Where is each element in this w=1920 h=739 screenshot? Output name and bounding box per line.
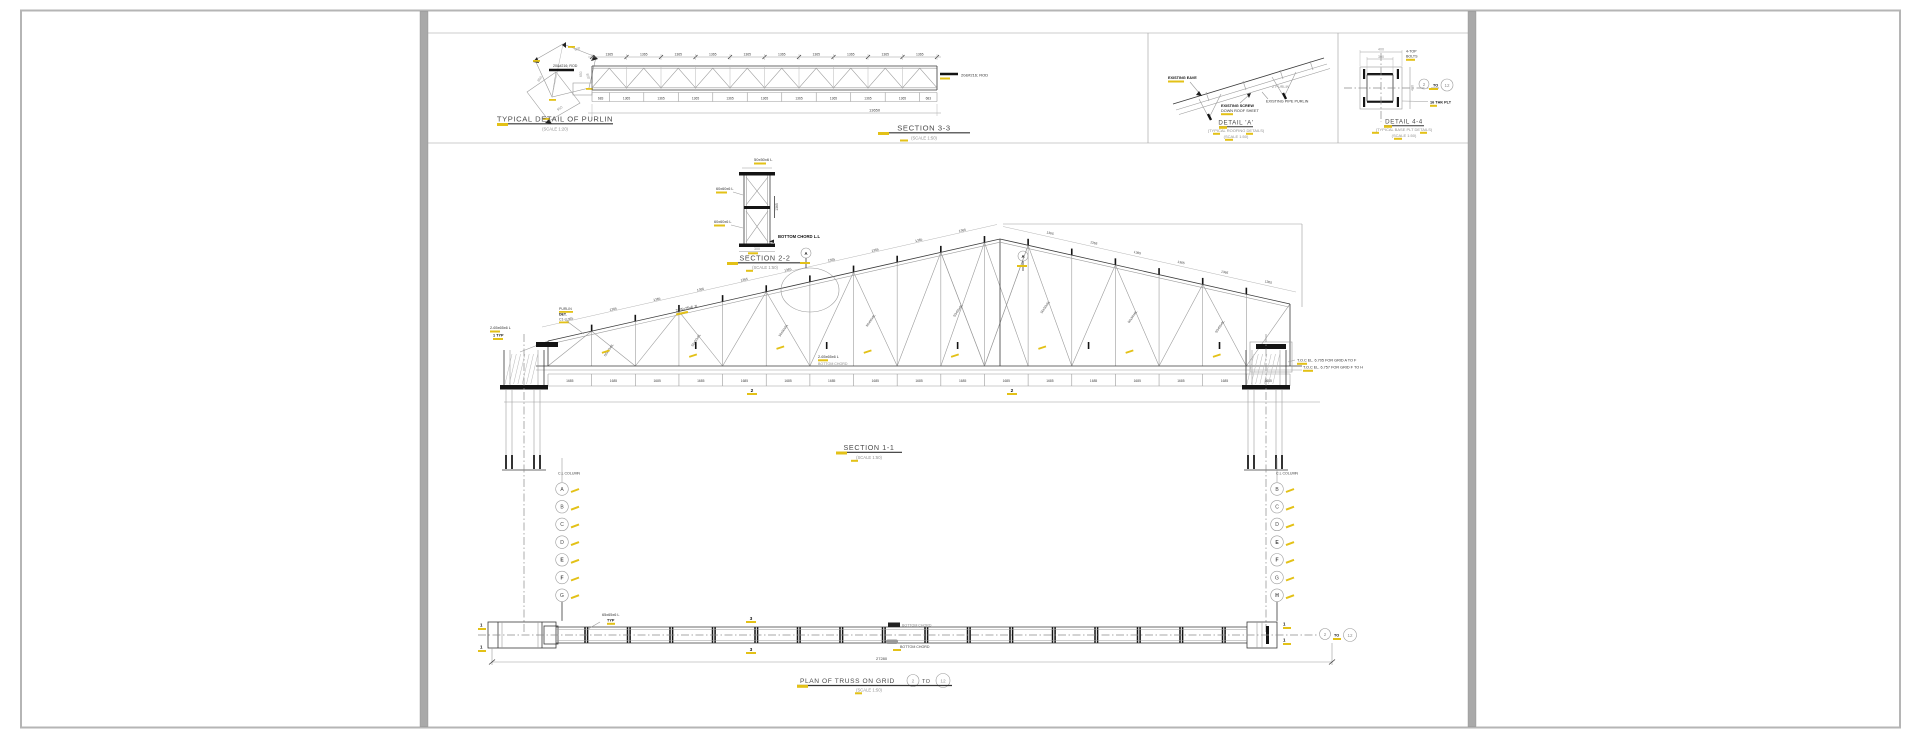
girder-bottom-dim: 1365 <box>761 96 769 100</box>
anchor-mark <box>539 455 541 469</box>
detail-a-flag: A <box>804 251 807 256</box>
elev-bay-dim: 1685 <box>653 379 661 383</box>
purlin-cleat-tick <box>1158 268 1160 275</box>
girder-top-dim: 1365 <box>916 53 924 57</box>
girder-top-dim: 1365 <box>709 53 717 57</box>
plan-chord-note-bottom: BOTTOM CHORD <box>900 645 930 649</box>
girder-top-dim: 1365 <box>640 53 648 57</box>
girder-rod-label: 20&#216; ROD <box>961 73 988 78</box>
plan-title-grid-to: 12 <box>940 679 946 685</box>
detail-4-4-bolt-note-2: BOLTS <box>1406 55 1418 59</box>
purlin-cleat-tick <box>634 315 636 322</box>
outer-border <box>21 11 1900 728</box>
purlin-cleat-tick <box>765 285 767 292</box>
purlin-note-2: DET. <box>559 313 567 317</box>
plan-cut-flag-top: 3 <box>750 616 753 621</box>
purlin-cleat-tick <box>1027 239 1029 246</box>
elev-bay-dim: 1685 <box>1046 379 1054 383</box>
elev-bay-dim: 1685 <box>959 379 967 383</box>
detail-4-4-dim-400: 400 <box>1378 48 1384 52</box>
detail-4-4-title: DETAIL 4-4 <box>1385 119 1423 126</box>
detail-4-4-dim-300: 300 <box>1378 55 1384 59</box>
elev-bay-dim: 1685 <box>1177 379 1185 383</box>
member-section-tick <box>695 342 697 349</box>
girder-bottom-dim: 683 <box>926 96 932 100</box>
left-grid-letter: F <box>560 575 563 581</box>
girder-top-dim: 1365 <box>881 53 889 57</box>
plan-title-grid-word: TO <box>922 679 931 685</box>
detail-a-scale: (SCALE 1:50) <box>1224 134 1249 139</box>
detail-4-4-grid-to-bubble: 12 <box>1444 83 1450 88</box>
member-section-tick <box>1219 342 1221 349</box>
detail-a-eave-label: EXISTING EAVE <box>1168 76 1197 80</box>
purlin-cleat-tick <box>896 256 898 262</box>
section-2-2-chord-label: BOTTOM CHORD L.L <box>778 234 820 239</box>
section-2-2-left-label-2: 60x60x6 L <box>714 220 732 224</box>
anchor-mark <box>511 455 513 469</box>
girder-top-dim: 1365 <box>674 53 682 57</box>
girder-bottom-dim: 1365 <box>795 96 803 100</box>
purlin-cleat-tick <box>984 236 986 243</box>
right-grid-letter: C <box>1275 505 1279 511</box>
detail-a-zpurlin-label: Z PURLIN <box>1272 85 1290 89</box>
girder-total-dim: 13650 <box>869 108 881 113</box>
cad-viewer-canvas: 20&#216; ROD 650 800 850 950 TYPICAL DET… <box>0 0 1920 739</box>
section-3-3-scale: (SCALE 1:50) <box>911 136 937 141</box>
detail-4-4-bolt-note-1: 4-TOP <box>1406 50 1417 54</box>
bottom-chord-label-2: BOTTOM CHORD <box>818 362 848 366</box>
plan-title: PLAN OF TRUSS ON GRID <box>800 678 895 685</box>
elev-bay-dim: 1685 <box>1221 379 1229 383</box>
purlin-cleat-tick <box>1246 288 1248 295</box>
toc-note-2: T.O.C EL. 6.757 FOR GRID F TO H <box>1303 366 1363 370</box>
girder-top-dim: 1365 <box>812 53 820 57</box>
purlin-cleat-tick <box>853 266 855 273</box>
detail-a-screw-label-1: EXISTING SCREW <box>1221 104 1254 108</box>
left-grid-letter: D <box>560 540 564 546</box>
section-1-1-title: SECTION 1-1 <box>844 443 895 452</box>
elev-bay-dim: 1685 <box>1134 379 1142 383</box>
bottom-chord-label: 2-65x65x6 L <box>818 355 839 359</box>
plan-total-dim: 27280 <box>876 656 888 661</box>
girder-left-dim: 650 <box>579 71 583 77</box>
detail-4-4-dim-right: 400 <box>1411 85 1415 91</box>
section-2-2-dim-width: 300 <box>754 247 760 251</box>
section-3-3-title: SECTION 3-3 <box>897 124 950 133</box>
viewer-frame <box>21 11 1900 728</box>
section-2-2-scale: (SCALE 1:50) <box>752 265 778 270</box>
purlin-cleat-tick <box>1202 278 1204 285</box>
anchor-mark <box>1281 455 1283 469</box>
elev-bay-dim: 1685 <box>915 379 923 383</box>
elev-bay-dim: 1685 <box>566 379 574 383</box>
section-2-2-dim-height: 1365 <box>775 203 779 211</box>
right-grid-letter: D <box>1275 522 1279 528</box>
girder-bottom-dim: 1365 <box>657 96 665 100</box>
member-section-tick <box>957 342 959 349</box>
section-2-2-title: SECTION 2-2 <box>740 254 791 263</box>
elev-bay-dim: 1685 <box>1265 379 1273 383</box>
girder-bottom-dim: 1365 <box>864 96 872 100</box>
anchor-mark <box>505 455 507 469</box>
girder-top-dim: 1365 <box>847 53 855 57</box>
girder-bottom-dim: 1365 <box>692 96 700 100</box>
right-grid-letter: H <box>1275 593 1279 599</box>
plan-member-label: 65x65x6 L <box>602 613 620 617</box>
member-section-tick <box>826 342 828 349</box>
right-grid-letter: G <box>1275 575 1279 581</box>
elev-bay-dim: 1685 <box>828 379 836 383</box>
purlin-cleat-tick <box>591 325 593 332</box>
purlin-cleat-tick <box>1071 249 1073 256</box>
purlin-detail-title: TYPICAL DETAIL OF PURLIN <box>497 115 613 124</box>
elev-bay-dim: 1685 <box>872 379 880 383</box>
purlin-cleat-tick <box>1115 258 1117 265</box>
plan-grid-word: TO <box>1334 634 1339 638</box>
elev-bay-dim: 1685 <box>610 379 618 383</box>
purlin-note-1: PURLIN <box>559 307 572 311</box>
page-divider-right <box>1468 12 1476 727</box>
detail-4-4-plate-note: 16 THK PLT <box>1430 101 1452 105</box>
page-divider-left <box>420 12 428 727</box>
plan-scale: (SCALE 1:50) <box>856 688 882 693</box>
toc-note-1: T.O.C EL. 6.705 FOR GRID A TO F <box>1297 359 1357 363</box>
left-member-label: 2-65x65x6 L <box>490 326 511 330</box>
purlin-cleat-tick <box>940 246 942 253</box>
section-1-1-scale: (SCALE 1:50) <box>856 455 882 460</box>
girder-bottom-dim: 683 <box>598 96 604 100</box>
left-grid-letter: G <box>560 593 564 599</box>
detail-a-pipe-label: EXISTING PIPE PURLIN <box>1266 100 1309 104</box>
plan-grid-to-bubble: 12 <box>1347 633 1353 638</box>
detail-4-4-scale: (SCALE 1:50) <box>1392 133 1417 138</box>
section-2-2-left-label-1: 60x60x6 L <box>716 187 734 191</box>
detail-a-title: DETAIL 'A' <box>1218 120 1253 127</box>
detail-4-4-subtitle: (TYPICAL BASE PLT DETAILS) <box>1376 127 1433 132</box>
girder-bottom-dim: 1365 <box>899 96 907 100</box>
purlin-rod-label: 20&#216; ROD <box>553 64 578 68</box>
left-typ-label: 1 TYP <box>493 334 504 338</box>
member-section-tick <box>1088 342 1090 349</box>
girder-top-dim: 1365 <box>605 53 613 57</box>
purlin-detail-scale: (SCALE 1:20) <box>542 127 568 132</box>
girder-top-dim: 1365 <box>778 53 786 57</box>
girder-bottom-dim: 1365 <box>830 96 838 100</box>
girder-top-dim: 1365 <box>743 53 751 57</box>
anchor-mark <box>1247 455 1249 469</box>
cl-column-note-left: C.L COLUMN <box>558 472 580 476</box>
elev-bay-dim: 1685 <box>1003 379 1011 383</box>
elev-bay-dim: 1685 <box>741 379 749 383</box>
purlin-cleat-tick <box>809 275 811 282</box>
elev-bay-dim: 1685 <box>784 379 792 383</box>
girder-bottom-dim: 1365 <box>726 96 734 100</box>
anchor-mark <box>533 455 535 469</box>
girder-bottom-dim: 1365 <box>623 96 631 100</box>
drawing-sheet: 20&#216; ROD 650 800 850 950 TYPICAL DET… <box>0 0 1920 739</box>
elev-bay-dim: 1685 <box>1090 379 1098 383</box>
plan-title-grid-from: 2 <box>912 679 915 685</box>
anchor-mark <box>1253 455 1255 469</box>
purlin-cleat-tick <box>722 295 724 302</box>
plan-cut-flag-bottom: 3 <box>750 647 753 652</box>
cl-column-note-right: C.L COLUMN <box>1276 472 1298 476</box>
detail-a-screw-label-2: DOWN ROOF SHEET <box>1221 109 1259 113</box>
plan-typ-note: TYP <box>607 619 615 623</box>
detail-a-subtitle: (TYPICAL ROOFING DETAILS) <box>1208 128 1265 133</box>
section-2-2-top-label: 50x50x6 L <box>754 157 773 162</box>
left-grid-letter: C <box>560 522 564 528</box>
detail-a-flag-2: A <box>1021 254 1024 259</box>
detail-4-4-grid-word: TO <box>1433 84 1438 88</box>
right-grid-letter: F <box>1275 558 1278 564</box>
purlin-note-3: C1-L <box>559 318 567 322</box>
plan-chord-note-top: BOTTOM CHORD <box>902 624 932 628</box>
elev-bay-dim: 1685 <box>697 379 705 383</box>
